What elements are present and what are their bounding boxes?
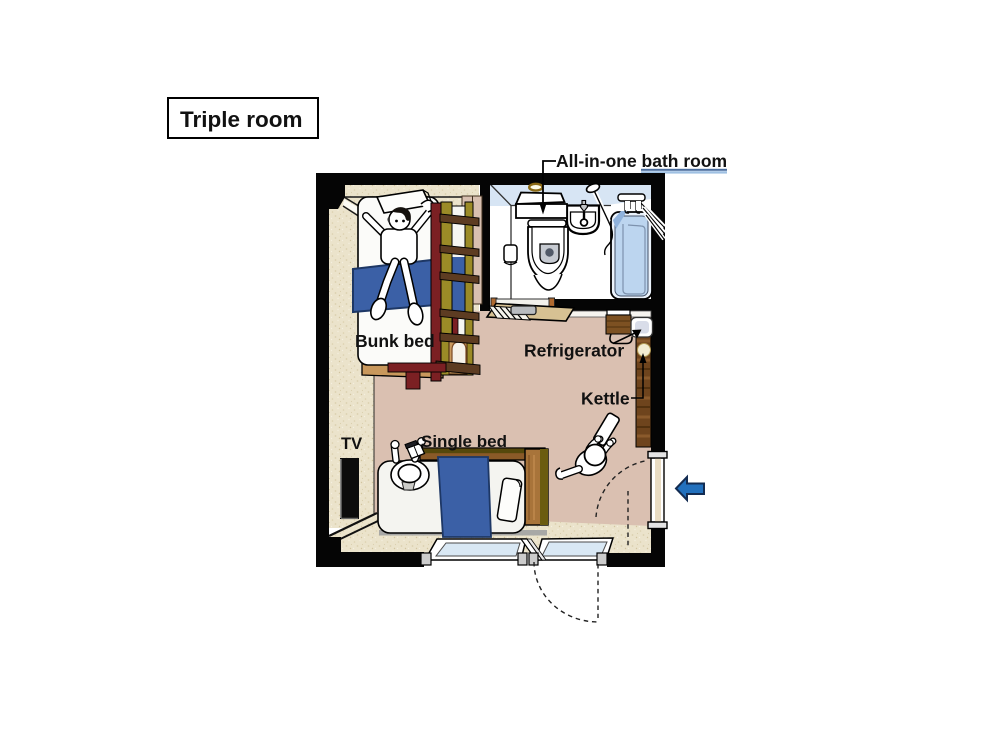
svg-text:Bunk bed: Bunk bed <box>355 331 435 351</box>
svg-text:Single bed: Single bed <box>421 432 507 451</box>
svg-text:TV: TV <box>341 435 362 453</box>
svg-text:All-in-one bath room: All-in-one bath room <box>556 151 727 171</box>
svg-text:Triple room: Triple room <box>180 107 303 132</box>
svg-text:Kettle: Kettle <box>581 389 630 409</box>
svg-text:Refrigerator: Refrigerator <box>524 341 624 361</box>
